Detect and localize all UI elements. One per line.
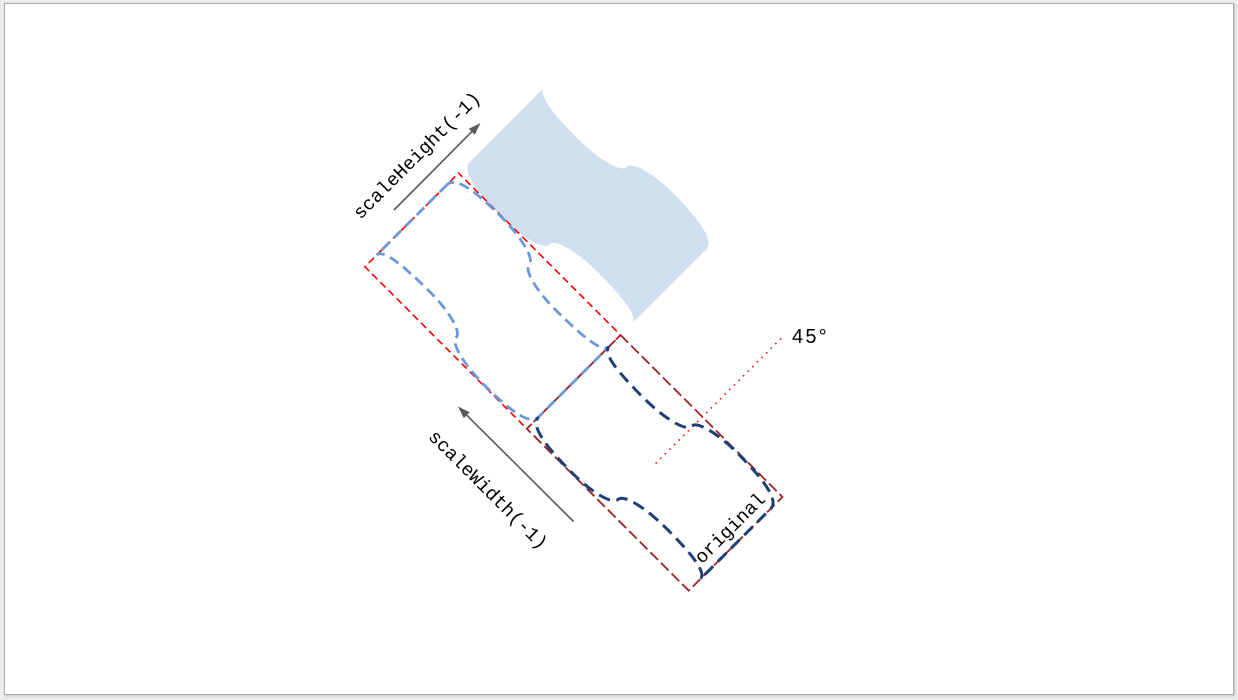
svg-text:scaleHeight(-1): scaleHeight(-1) — [349, 88, 485, 224]
svg-text:scaleWidth(-1): scaleWidth(-1) — [423, 426, 551, 554]
svg-text:45°: 45° — [792, 326, 829, 348]
svg-text:original: original — [691, 489, 771, 569]
